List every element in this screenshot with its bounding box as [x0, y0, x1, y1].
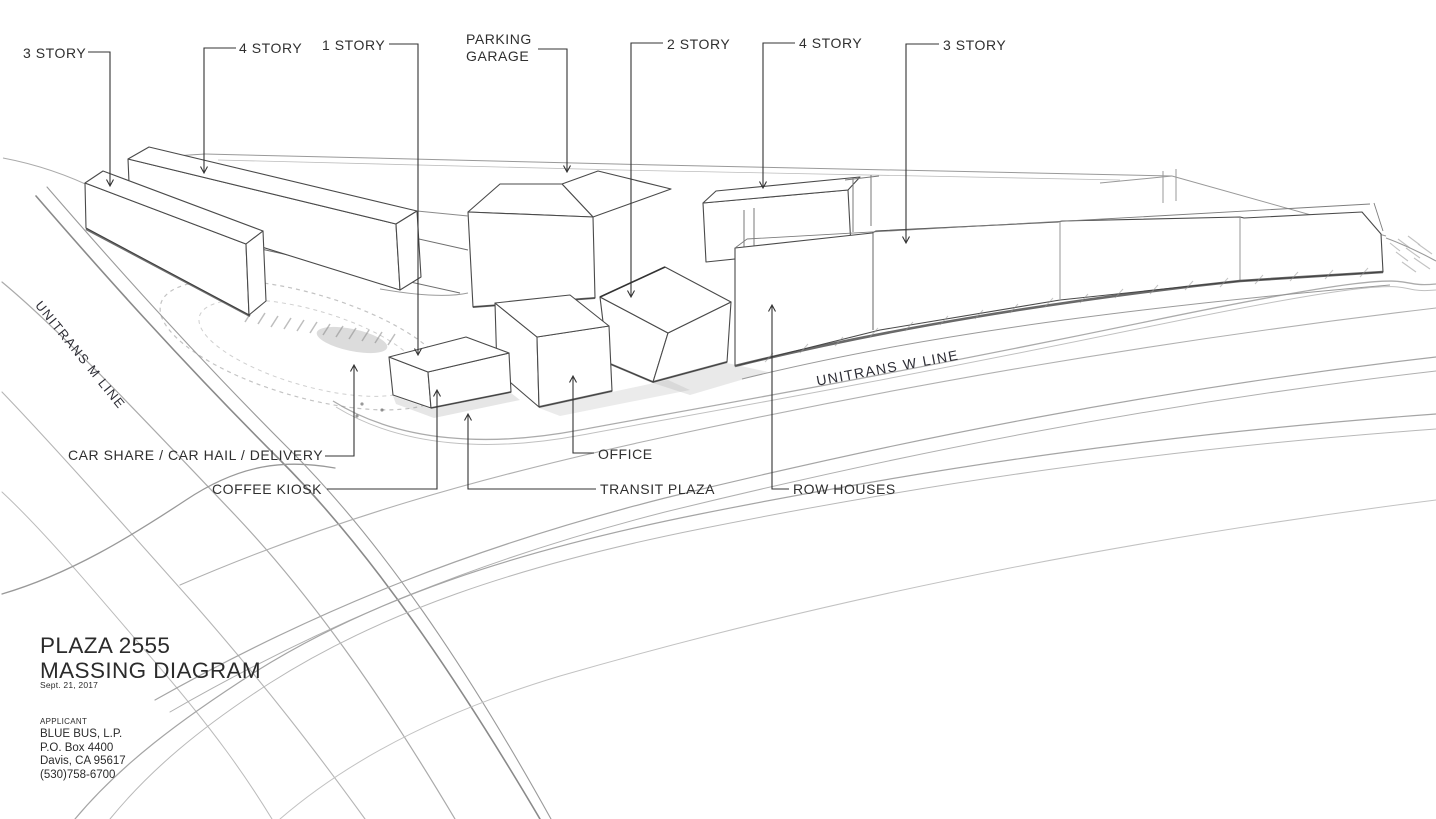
corner-sidewalk	[1386, 238, 1436, 261]
leader-3story-west	[88, 52, 114, 186]
applicant-info: BLUE BUS, L.P. P.O. Box 4400 Davis, CA 9…	[40, 728, 126, 782]
sheet-date: Sept. 21, 2017	[40, 680, 98, 690]
landscape-blob	[314, 322, 389, 358]
leader-3story-east	[903, 44, 940, 243]
applicant-heading: APPLICANT	[40, 717, 87, 726]
leader-1story	[389, 44, 422, 355]
label-row-houses: ROW HOUSES	[793, 481, 896, 498]
leader-parking-garage	[538, 49, 571, 172]
street-unitrans-w-line-drawing	[75, 308, 1436, 819]
project-title: PLAZA 2555	[40, 633, 170, 659]
label-3story-east: 3 STORY	[943, 37, 1006, 54]
label-car-share: CAR SHARE / CAR HAIL / DELIVERY	[68, 447, 323, 464]
buildings-group	[85, 147, 1436, 408]
label-office: OFFICE	[598, 446, 653, 463]
corner-hatch	[1390, 236, 1432, 272]
building-2story	[600, 267, 731, 382]
massing-sketch	[0, 0, 1436, 819]
massing-diagram-page: 3 STORY 4 STORY 1 STORY PARKING GARAGE 2…	[0, 0, 1436, 819]
label-parking-garage: PARKING GARAGE	[466, 31, 532, 65]
label-3story-west: 3 STORY	[23, 45, 86, 62]
label-1story: 1 STORY	[322, 37, 385, 54]
label-coffee-kiosk: COFFEE KIOSK	[212, 481, 322, 498]
label-transit-plaza: TRANSIT PLAZA	[600, 481, 715, 498]
office-cube	[495, 295, 612, 407]
label-2story: 2 STORY	[667, 36, 730, 53]
label-4story-mid: 4 STORY	[799, 35, 862, 52]
leader-transit-plaza	[465, 414, 597, 489]
leader-4story-mid	[760, 43, 796, 188]
label-4story-west: 4 STORY	[239, 40, 302, 57]
